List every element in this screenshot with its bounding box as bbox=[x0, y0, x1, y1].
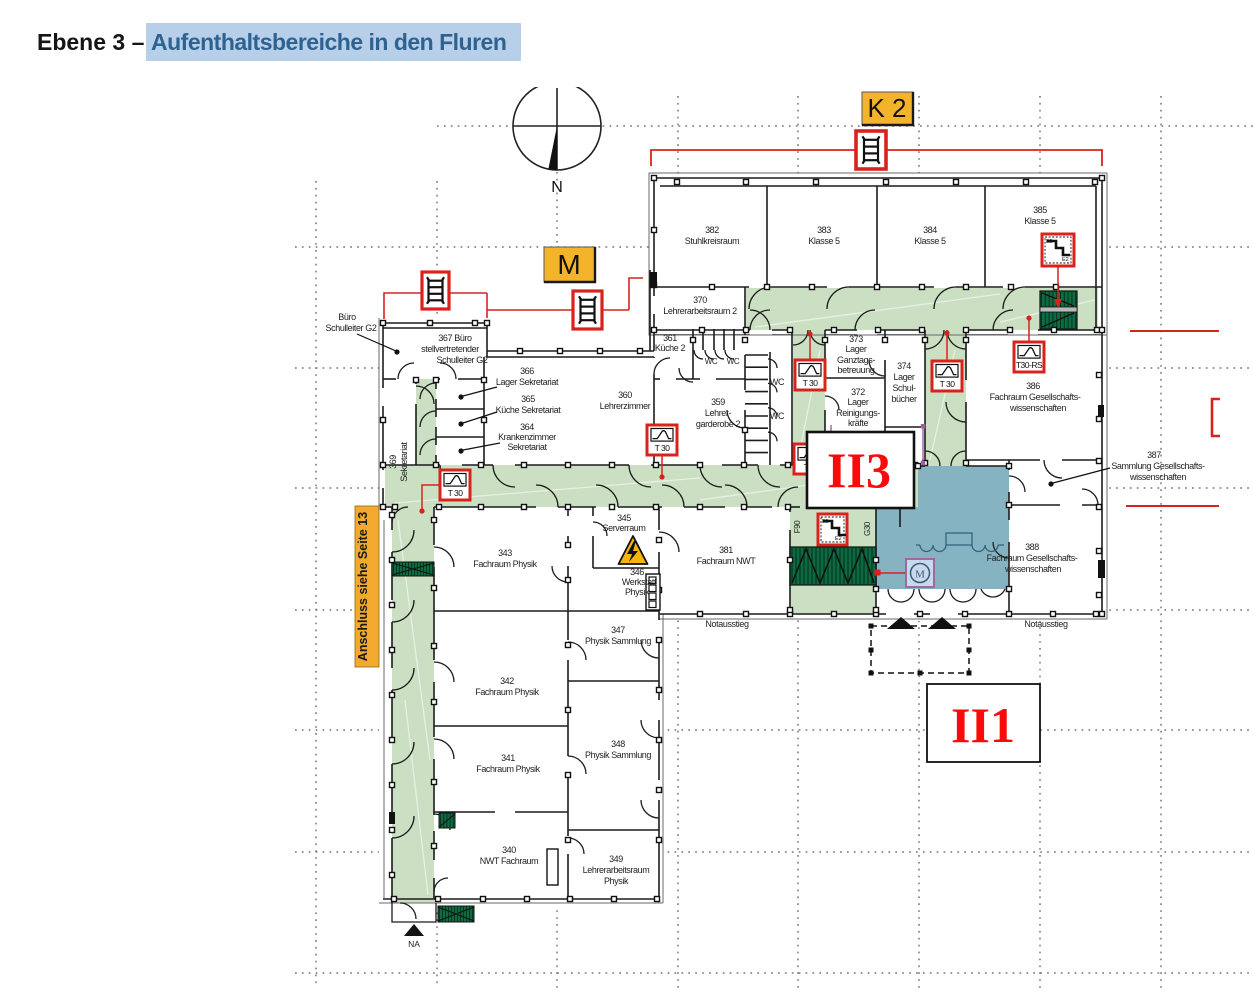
svg-text:367 Büro: 367 Büro bbox=[438, 333, 472, 343]
svg-text:II3: II3 bbox=[827, 442, 891, 498]
svg-text:Fachraum NWT: Fachraum NWT bbox=[697, 556, 757, 566]
svg-text:Sammlung Gesellschafts-: Sammlung Gesellschafts- bbox=[1111, 461, 1205, 471]
svg-text:341: 341 bbox=[501, 753, 515, 763]
svg-text:F90: F90 bbox=[793, 520, 802, 534]
svg-text:365: 365 bbox=[521, 394, 535, 404]
svg-text:kräfte: kräfte bbox=[848, 418, 869, 428]
svg-text:Reinigungs-: Reinigungs- bbox=[836, 408, 880, 418]
svg-text:388: 388 bbox=[1025, 542, 1039, 552]
svg-text:387: 387 bbox=[1147, 450, 1161, 460]
svg-text:Büro: Büro bbox=[338, 312, 356, 322]
svg-text:Lehrerarbeitsraum: Lehrerarbeitsraum bbox=[583, 865, 650, 875]
svg-text:Küche 2: Küche 2 bbox=[655, 343, 686, 353]
svg-text:383: 383 bbox=[817, 225, 831, 235]
svg-text:E5: E5 bbox=[1046, 239, 1053, 245]
svg-text:369: 369 bbox=[388, 455, 398, 469]
svg-text:Physik Sammlung: Physik Sammlung bbox=[585, 750, 651, 760]
svg-text:E2: E2 bbox=[835, 536, 842, 542]
svg-text:E5: E5 bbox=[822, 519, 829, 525]
svg-text:NA: NA bbox=[408, 939, 420, 949]
svg-text:N: N bbox=[551, 179, 563, 196]
svg-text:Notausstieg: Notausstieg bbox=[1024, 619, 1068, 629]
svg-text:garderobe 2: garderobe 2 bbox=[696, 419, 741, 429]
svg-text:G30: G30 bbox=[863, 521, 872, 536]
svg-text:M: M bbox=[557, 249, 580, 280]
svg-text:M: M bbox=[915, 569, 925, 581]
svg-text:Ganztags-: Ganztags- bbox=[837, 355, 875, 365]
svg-text:Schulleiter G2: Schulleiter G2 bbox=[326, 323, 377, 333]
svg-text:370: 370 bbox=[693, 295, 707, 305]
svg-text:373: 373 bbox=[849, 334, 863, 344]
svg-text:345: 345 bbox=[617, 513, 631, 523]
svg-text:Physik: Physik bbox=[625, 587, 650, 597]
svg-text:Lager Sekretariat: Lager Sekretariat bbox=[496, 377, 559, 387]
svg-text:340: 340 bbox=[502, 845, 516, 855]
svg-text:Serverraum: Serverraum bbox=[602, 523, 645, 533]
svg-text:bücher: bücher bbox=[891, 394, 917, 404]
svg-text:348: 348 bbox=[611, 739, 625, 749]
svg-text:Fachraum Gesellschafts-: Fachraum Gesellschafts- bbox=[990, 392, 1081, 402]
svg-text:360: 360 bbox=[618, 390, 632, 400]
svg-text:Fachraum Physik: Fachraum Physik bbox=[476, 764, 540, 774]
svg-text:Schulleiter G2: Schulleiter G2 bbox=[437, 355, 488, 365]
svg-text:WC: WC bbox=[727, 357, 740, 366]
svg-text:384: 384 bbox=[923, 225, 937, 235]
svg-text:Aufenthaltsbereiche in den Flu: Aufenthaltsbereiche in den Fluren bbox=[151, 29, 506, 55]
svg-text:361: 361 bbox=[663, 333, 677, 343]
svg-text:359: 359 bbox=[711, 397, 725, 407]
svg-text:342: 342 bbox=[500, 676, 514, 686]
svg-text:386: 386 bbox=[1026, 381, 1040, 391]
svg-text:Lehrerarbeitsraum 2: Lehrerarbeitsraum 2 bbox=[663, 306, 737, 316]
svg-text:Lehrer-: Lehrer- bbox=[705, 408, 732, 418]
svg-text:Fachraum Physik: Fachraum Physik bbox=[473, 559, 537, 569]
svg-text:T 30: T 30 bbox=[655, 443, 671, 453]
svg-text:Lager: Lager bbox=[893, 372, 914, 382]
svg-text:Sekretariat: Sekretariat bbox=[399, 442, 409, 482]
svg-text:T 30: T 30 bbox=[448, 488, 464, 498]
svg-text:347: 347 bbox=[611, 625, 625, 635]
svg-text:Fachraum Physik: Fachraum Physik bbox=[475, 687, 539, 697]
svg-text:Küche Sekretariat: Küche Sekretariat bbox=[496, 405, 562, 415]
svg-text:NWT Fachraum: NWT Fachraum bbox=[480, 856, 539, 866]
svg-text:Klasse 5: Klasse 5 bbox=[914, 236, 946, 246]
svg-text:K 2: K 2 bbox=[867, 93, 906, 123]
svg-text:Physik Sammlung: Physik Sammlung bbox=[585, 636, 651, 646]
svg-text:374: 374 bbox=[897, 361, 911, 371]
svg-text:346: 346 bbox=[630, 567, 644, 577]
svg-text:Notausstieg: Notausstieg bbox=[705, 619, 749, 629]
svg-text:349: 349 bbox=[609, 854, 623, 864]
svg-text:Fachraum Gesellschafts-: Fachraum Gesellschafts- bbox=[987, 553, 1078, 563]
svg-text:betreuung: betreuung bbox=[838, 365, 875, 375]
svg-text:WC: WC bbox=[705, 357, 718, 366]
svg-text:E2: E2 bbox=[1062, 257, 1069, 263]
svg-text:Anschluss siehe Seite 13: Anschluss siehe Seite 13 bbox=[356, 512, 370, 661]
svg-text:Klasse 5: Klasse 5 bbox=[808, 236, 840, 246]
svg-text:wissenschaften: wissenschaften bbox=[1129, 472, 1186, 482]
svg-text:Lager: Lager bbox=[847, 397, 868, 407]
svg-text:T 30: T 30 bbox=[940, 379, 956, 389]
svg-text:Physik: Physik bbox=[604, 876, 629, 886]
svg-text:382: 382 bbox=[705, 225, 719, 235]
svg-text:372: 372 bbox=[851, 387, 865, 397]
svg-text:WC: WC bbox=[770, 377, 785, 387]
svg-text:Lager: Lager bbox=[845, 344, 866, 354]
svg-text:wissenschaften: wissenschaften bbox=[1004, 564, 1061, 574]
svg-text:Klasse 5: Klasse 5 bbox=[1024, 216, 1056, 226]
svg-text:366: 366 bbox=[520, 366, 534, 376]
svg-text:Ebene 3 –: Ebene 3 – bbox=[37, 29, 145, 55]
svg-text:385: 385 bbox=[1033, 205, 1047, 215]
svg-text:Stuhlkreisraum: Stuhlkreisraum bbox=[685, 236, 739, 246]
svg-text:wissenschaften: wissenschaften bbox=[1009, 403, 1066, 413]
svg-text:343: 343 bbox=[498, 548, 512, 558]
svg-text:364: 364 bbox=[520, 422, 534, 432]
svg-text:Schul-: Schul- bbox=[892, 383, 916, 393]
svg-text:Sekretariat: Sekretariat bbox=[507, 442, 547, 452]
svg-text:Werkstatt: Werkstatt bbox=[622, 577, 657, 587]
svg-text:II1: II1 bbox=[951, 697, 1015, 753]
svg-text:stellvertretender: stellvertretender bbox=[421, 344, 479, 354]
svg-text:T 30: T 30 bbox=[803, 378, 819, 388]
svg-text:Krankenzimmer: Krankenzimmer bbox=[498, 432, 556, 442]
svg-text:Lehrerzimmer: Lehrerzimmer bbox=[600, 401, 651, 411]
svg-text:381: 381 bbox=[719, 545, 733, 555]
svg-text:T30-RS: T30-RS bbox=[1016, 360, 1043, 370]
svg-text:WC: WC bbox=[770, 411, 785, 421]
